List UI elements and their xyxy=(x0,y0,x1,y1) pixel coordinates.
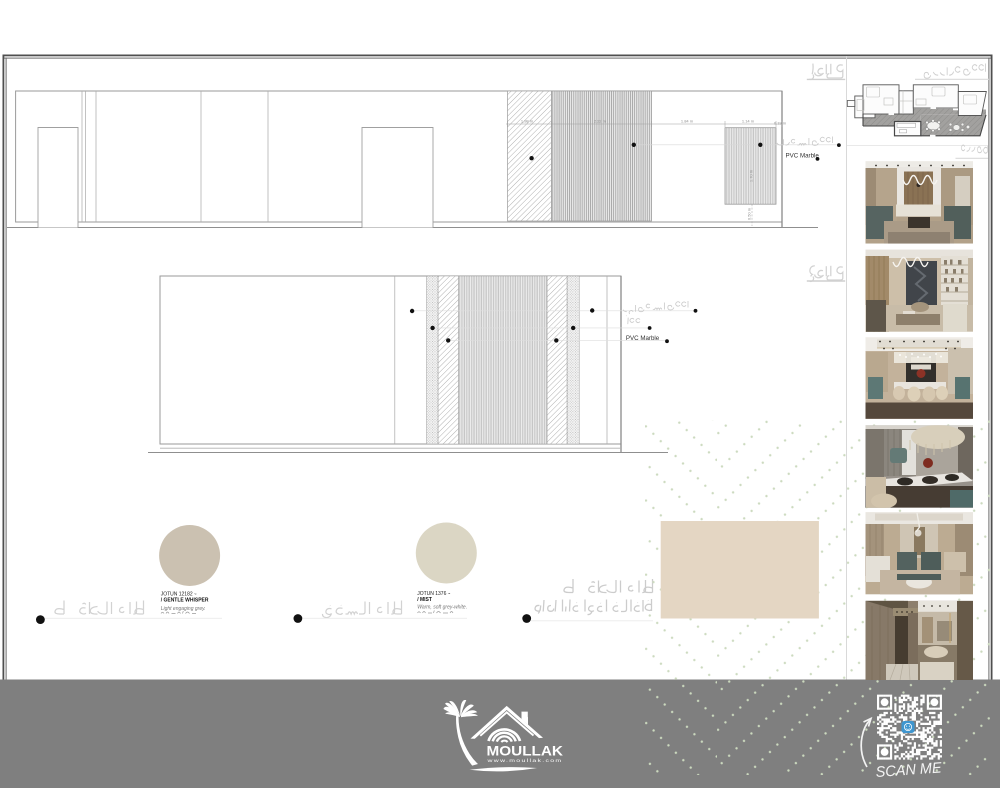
svg-text:0.19 m: 0.19 m xyxy=(774,121,787,126)
svg-text:/ GENTLE WHISPER: / GENTLE WHISPER xyxy=(161,597,209,603)
svg-text:PVC Marble: PVC Marble xyxy=(786,152,820,159)
svg-text:1.70 m: 1.70 m xyxy=(749,169,754,182)
svg-text:www.moullak.com: www.moullak.com xyxy=(488,758,563,763)
svg-text:MOULLAK: MOULLAK xyxy=(487,743,564,759)
svg-text:2.22 m: 2.22 m xyxy=(594,119,607,124)
svg-text:Warm, soft grey-white.: Warm, soft grey-white. xyxy=(417,605,467,611)
svg-text:/ MIST: / MIST xyxy=(417,597,432,603)
svg-text:PVC Marble: PVC Marble xyxy=(626,335,660,342)
svg-text:0.50 m: 0.50 m xyxy=(747,207,752,220)
svg-text:1.84 m: 1.84 m xyxy=(681,119,694,124)
svg-text:1.14 m: 1.14 m xyxy=(742,119,755,124)
svg-text:Light engaging grey.: Light engaging grey. xyxy=(161,606,206,612)
svg-text:1.98 m: 1.98 m xyxy=(521,119,534,124)
